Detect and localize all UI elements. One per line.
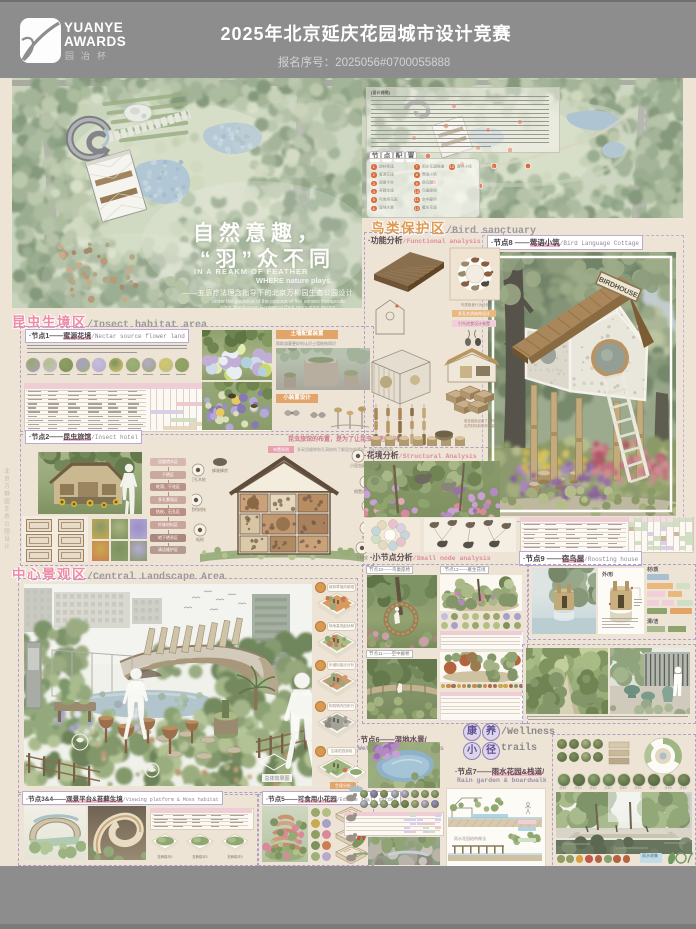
- svg-text:蜂巢蜂房: 蜂巢蜂房: [212, 467, 228, 473]
- svg-text:蚯蚓: 蚯蚓: [196, 536, 204, 542]
- svg-text:雨水花园结构做法: 雨水花园结构做法: [454, 835, 486, 841]
- svg-text:闲置的树枝: 闲置的树枝: [192, 506, 206, 512]
- svg-text:悬挂链接运用了多样的: 悬挂链接运用了多样的: [464, 418, 499, 423]
- svg-text:总体效果图: 总体效果图: [264, 775, 289, 782]
- svg-text:鸟类取食行为分析: 鸟类取食行为分析: [461, 302, 490, 307]
- svg-text:多孔木质结构设计: 多孔木质结构设计: [458, 310, 490, 316]
- svg-text:引鸟进食设计装置: 引鸟进食设计装置: [458, 320, 490, 326]
- svg-text:苔藓模块3: 苔藓模块3: [227, 854, 243, 859]
- svg-text:自然材料制作风铃装置: 自然材料制作风铃装置: [464, 423, 499, 428]
- svg-text:苔藓模块2: 苔藓模块2: [192, 854, 208, 859]
- svg-text:干树皮: 干树皮: [356, 554, 368, 560]
- svg-text:外/形: 外/形: [602, 571, 613, 578]
- svg-text:苔藓模块1: 苔藓模块1: [157, 854, 173, 859]
- svg-text:打孔木桩: 打孔木桩: [192, 476, 206, 482]
